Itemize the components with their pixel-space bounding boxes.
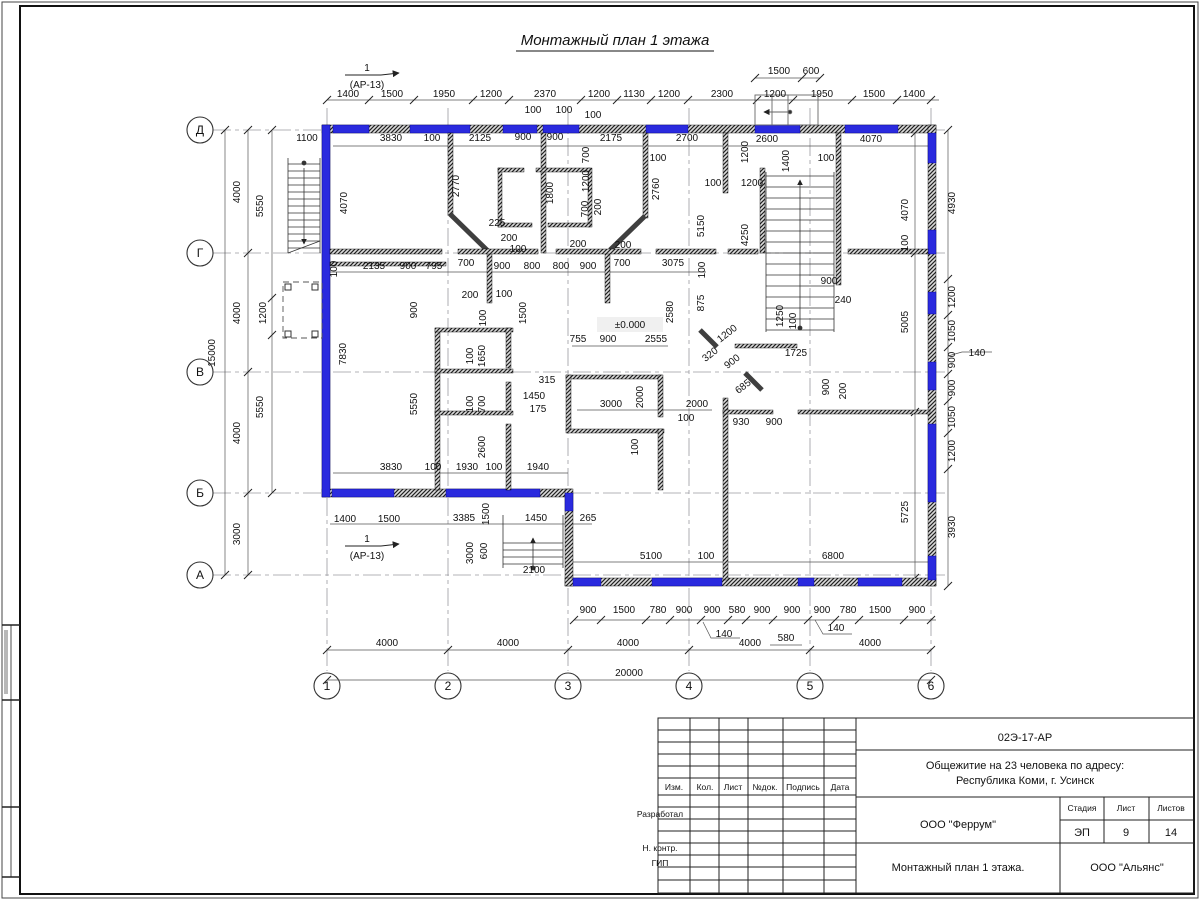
stage-label: Стадия (1068, 803, 1097, 813)
row-nkontr: Н. контр. (642, 843, 677, 853)
dim-label: 1500 (613, 605, 636, 616)
dim-label: 100 (698, 551, 715, 562)
dim-label: 100 (525, 105, 542, 116)
dim-label: 100 (478, 309, 489, 326)
dim-label: 1650 (477, 344, 488, 367)
dim-label: 1500 (518, 301, 529, 324)
title-block: 02Э-17-АР Общежитие на 23 человека по ад… (637, 718, 1194, 893)
section-ref: (АР-13) (350, 551, 384, 562)
dim-label: 1930 (456, 462, 479, 473)
dim-label: 5100 (640, 551, 663, 562)
dim-label: 4930 (947, 191, 958, 214)
dim-label: 1500 (869, 605, 892, 616)
dim-label: 1200 (947, 285, 958, 308)
dim-label: 2600 (756, 134, 779, 145)
dim-label: 580 (778, 633, 795, 644)
col-list: Лист (724, 782, 743, 792)
dim-label: 3000 (465, 541, 476, 564)
dim-label: 700 (458, 258, 475, 269)
left-stamp (2, 625, 20, 877)
dim-label: 4000 (232, 301, 243, 324)
doc-code: 02Э-17-АР (998, 732, 1052, 744)
dim-label: 3000 (232, 522, 243, 545)
dim-label: 4000 (376, 638, 399, 649)
axis-bubble-label: 3 (565, 679, 572, 693)
dim-label: 100 (510, 244, 527, 255)
dim-label: 900 (494, 261, 511, 272)
dim-label: 1500 (381, 89, 404, 100)
dim-label: 700 (614, 258, 631, 269)
stamp-microtext (4, 630, 8, 694)
dim-label: 100 (705, 178, 722, 189)
dim-label: 1200 (480, 89, 503, 100)
axis-bubble-label: 4 (686, 679, 693, 693)
dim-label: 900 (947, 351, 958, 368)
dim-label: 5550 (409, 392, 420, 415)
dim-label: 4070 (860, 134, 883, 145)
floor-plan-canvas: Монтажный план 1 этажа ДГВБА123456 (0, 0, 1200, 900)
sheet-value: 9 (1123, 827, 1129, 839)
dim-label: 1200 (258, 301, 269, 324)
dim-label: 5550 (255, 194, 266, 217)
section-number: 1 (364, 63, 370, 74)
dim-label: 2580 (665, 300, 676, 323)
dim-label: 1200 (588, 89, 611, 100)
axis-bubble-label: 2 (445, 679, 452, 693)
dim-label: 2135 (363, 261, 386, 272)
axis-bubble-label: А (196, 568, 204, 582)
dim-label: 2770 (451, 174, 462, 197)
dim-label: 700 (581, 146, 592, 163)
dim-label: 100 (486, 462, 503, 473)
dim-label: 1500 (378, 514, 401, 525)
dim-label: 3930 (947, 515, 958, 538)
dim-label: 5150 (696, 214, 707, 237)
dim-label: 900 (547, 132, 564, 143)
dim-label: 100 (900, 234, 911, 251)
drawing-title: Монтажный план 1 этажа. (892, 862, 1025, 874)
dim-label: 1250 (775, 304, 786, 327)
dim-label: 900 (722, 352, 742, 371)
dim-label: 1800 (545, 181, 556, 204)
dim-label: 700 (477, 395, 488, 412)
dim-label: 1500 (863, 89, 886, 100)
dim-label: 100 (465, 347, 476, 364)
col-kol: Кол. (697, 782, 714, 792)
dim-label: 100 (650, 153, 667, 164)
dim-label: 315 (539, 375, 556, 386)
dim-label: 780 (650, 605, 667, 616)
dim-label: 900 (580, 261, 597, 272)
dim-label: 930 (733, 417, 750, 428)
col-doc: №док. (753, 782, 778, 792)
dim-label: 1100 (296, 133, 318, 144)
dim-label: 225 (489, 218, 506, 229)
dim-label: 100 (630, 438, 641, 455)
dim-label: 320 (700, 345, 720, 364)
axis-bubble-label: 6 (928, 679, 935, 693)
dim-label: 795 (426, 261, 443, 272)
dim-label: 1200 (715, 323, 740, 346)
dim-label: 100 (678, 413, 695, 424)
dim-label: 2700 (676, 133, 699, 144)
dim-label: 2300 (711, 89, 734, 100)
dim-label: 900 (704, 605, 721, 616)
dim-label: 4000 (859, 638, 882, 649)
dim-label: 1200 (658, 89, 681, 100)
dim-label: 4070 (900, 198, 911, 221)
dim-label: 4070 (339, 191, 350, 214)
dim-label: 4000 (617, 638, 640, 649)
dim-label: 900 (400, 261, 417, 272)
sheets-label: Листов (1157, 803, 1185, 813)
dim-label: 5550 (255, 395, 266, 418)
dim-label: 900 (754, 605, 771, 616)
dim-label: 3830 (380, 462, 403, 473)
dim-label: 240 (835, 295, 852, 306)
sheets-value: 14 (1165, 827, 1177, 839)
dim-label: 2760 (651, 177, 662, 200)
dim-label: 2125 (469, 133, 492, 144)
dim-label: 140 (716, 629, 733, 640)
dim-label: 900 (784, 605, 801, 616)
dim-label: 4000 (497, 638, 520, 649)
dim-label: 200 (593, 198, 604, 215)
dim-label: 5005 (900, 310, 911, 333)
dim-label: 1200 (741, 178, 764, 189)
dim-label: 3000 (600, 399, 623, 410)
dim-label: 2370 (534, 89, 557, 100)
dim-label: 2555 (645, 334, 668, 345)
dim-label: 5725 (900, 500, 911, 523)
dim-label: 900 (515, 132, 532, 143)
dim-label: 4000 (232, 421, 243, 444)
interior-walls (330, 133, 930, 580)
dim-label: 4000 (739, 638, 762, 649)
axis-bubble-label: В (196, 365, 204, 379)
row-gip: ГИП (652, 858, 669, 868)
section-number: 1 (364, 534, 370, 545)
dim-label: 1500 (768, 66, 791, 77)
dim-label: 900 (676, 605, 693, 616)
masonry-window-segments (322, 125, 936, 586)
dim-label: 2600 (477, 435, 488, 458)
dim-label: 2175 (600, 133, 623, 144)
dim-label: 200 (462, 290, 479, 301)
dim-label: 1200 (947, 439, 958, 462)
page-title-group: Монтажный план 1 этажа (516, 32, 714, 51)
org2-name: ООО "Альянс" (1090, 862, 1164, 874)
dim-label: 1950 (811, 89, 834, 100)
dim-label: 100 (424, 133, 441, 144)
dim-label: 800 (553, 261, 570, 272)
outer-walls (322, 125, 936, 586)
dim-label: 1200 (581, 169, 592, 192)
dim-label: 900 (580, 605, 597, 616)
dim-label: 1940 (527, 462, 550, 473)
col-izm: Изм. (665, 782, 683, 792)
dim-label: 900 (821, 378, 832, 395)
page-title: Монтажный план 1 этажа (521, 32, 710, 49)
dim-label: 200 (570, 239, 587, 250)
dim-label: 1450 (523, 391, 546, 402)
dim-label: 100 (788, 312, 799, 329)
dim-label: 140 (969, 348, 986, 359)
dim-label: 7830 (338, 342, 349, 365)
org-name: ООО "Феррум" (920, 819, 996, 831)
stage-value: ЭП (1074, 827, 1090, 839)
section-ref: (АР-13) (350, 80, 384, 91)
dim-label: 100 (556, 105, 573, 116)
section-arrow (381, 73, 399, 75)
axis-bubble-label: 5 (807, 679, 814, 693)
dim-label: 580 (729, 605, 746, 616)
dim-label: 3075 (662, 258, 685, 269)
dim-label: 600 (803, 66, 820, 77)
dim-label: 6800 (822, 551, 845, 562)
dim-label: 1050 (947, 319, 958, 342)
dim-label: 265 (580, 513, 597, 524)
project-line1: Общежитие на 23 человека по адресу: (926, 760, 1124, 772)
dim-label: 755 (570, 334, 587, 345)
dim-label: 600 (479, 542, 490, 559)
dim-label: 4000 (232, 180, 243, 203)
dim-label: 900 (947, 379, 958, 396)
level-mark: ±0.000 (615, 320, 646, 331)
dim-label: 20000 (615, 668, 643, 679)
dim-label: 1400 (334, 514, 357, 525)
dim-label: 175 (530, 404, 547, 415)
dim-label: 780 (840, 605, 857, 616)
dim-label: 15000 (207, 339, 218, 367)
dim-label: 1725 (785, 348, 808, 359)
col-data: Дата (831, 782, 850, 792)
dim-label: 3385 (453, 513, 476, 524)
axis-bubble-label: 1 (324, 679, 331, 693)
dim-label: 100 (329, 260, 340, 277)
dim-label: 1050 (947, 405, 958, 428)
dim-label: 100 (425, 462, 442, 473)
dim-label: 200 (615, 240, 632, 251)
dim-label: 100 (818, 153, 835, 164)
dim-label: 1450 (525, 513, 548, 524)
dim-label: 100 (465, 395, 476, 412)
dim-label: 900 (600, 334, 617, 345)
dim-label: 1950 (433, 89, 456, 100)
dim-label: 1500 (481, 502, 492, 525)
axis-bubble-label: Д (196, 123, 204, 137)
dim-label: 3830 (380, 133, 403, 144)
dim-label: 875 (696, 294, 707, 311)
dim-label: 1200 (740, 140, 751, 163)
dim-label: 800 (524, 261, 541, 272)
dim-label: 2100 (523, 565, 546, 576)
section-arrow (381, 544, 399, 546)
axis-bubble-label: Г (197, 246, 204, 260)
dim-label: 4250 (740, 223, 751, 246)
dim-label: 900 (814, 605, 831, 616)
dim-label: 1400 (781, 149, 792, 172)
dim-label: 100 (697, 261, 708, 278)
row-razrabotal: Разработал (637, 809, 683, 819)
fire-escape-stair (288, 158, 320, 253)
dim-label: 900 (821, 276, 838, 287)
sheet-label: Лист (1117, 803, 1136, 813)
porch-dashed (283, 282, 322, 338)
axis-bubble-label: Б (196, 486, 204, 500)
project-line2: Республика Коми, г. Усинск (956, 775, 1094, 787)
dim-label: 1400 (903, 89, 926, 100)
dim-label: 200 (838, 382, 849, 399)
dim-label: 900 (409, 301, 420, 318)
drawing-sheet: Монтажный план 1 этажа ДГВБА123456 (0, 0, 1200, 900)
dim-label: 1130 (623, 89, 645, 100)
dim-label: 1200 (764, 89, 787, 100)
dim-label: 900 (909, 605, 926, 616)
dim-label: 2000 (635, 385, 646, 408)
col-podpis: Подпись (786, 782, 820, 792)
dim-label: 700 (580, 200, 591, 217)
dim-label: 900 (766, 417, 783, 428)
dim-label: 100 (496, 289, 513, 300)
dim-label: 100 (585, 110, 602, 121)
dim-label: 200 (501, 233, 518, 244)
dim-label: 140 (828, 623, 845, 634)
dim-label: 2000 (686, 399, 709, 410)
